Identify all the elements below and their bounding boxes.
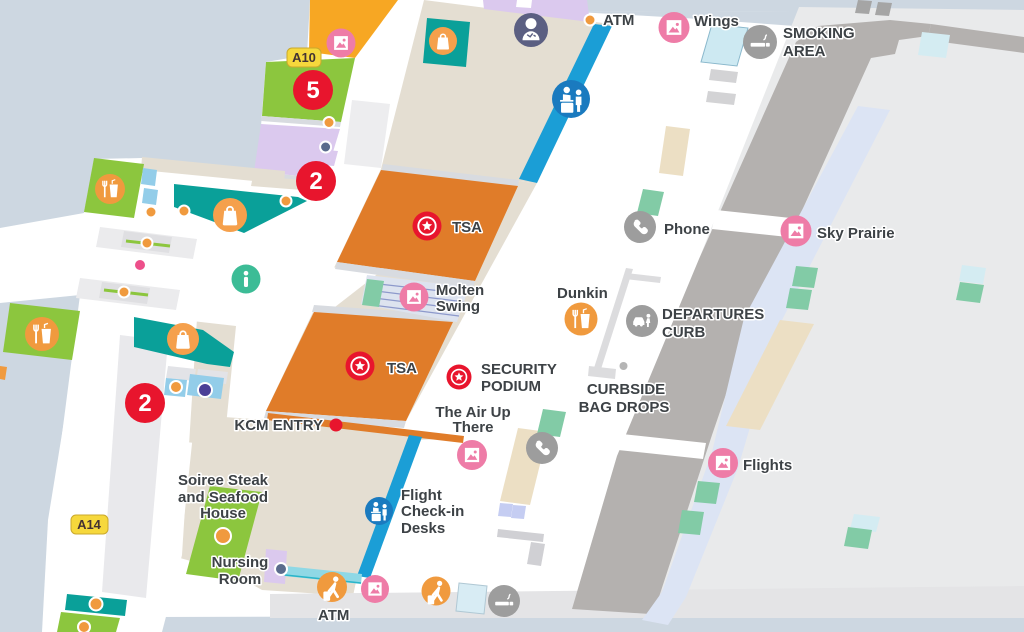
svg-text:A14: A14 <box>77 517 102 532</box>
svg-text:House: House <box>200 505 246 522</box>
svg-text:Room: Room <box>219 571 262 588</box>
svg-text:Sky Prairie: Sky Prairie <box>817 225 895 242</box>
svg-text:2: 2 <box>138 390 151 417</box>
svg-text:CURBSIDE: CURBSIDE <box>587 381 665 398</box>
svg-text:Soiree Steak: Soiree Steak <box>178 472 269 489</box>
svg-text:Molten: Molten <box>436 282 484 299</box>
svg-text:Dunkin: Dunkin <box>557 285 608 302</box>
svg-text:DEPARTURES: DEPARTURES <box>662 306 764 323</box>
svg-text:and Seafood: and Seafood <box>178 489 268 506</box>
svg-text:PODIUM: PODIUM <box>481 378 541 395</box>
svg-text:TSA: TSA <box>387 360 417 377</box>
svg-text:There: There <box>453 419 494 436</box>
svg-text:2: 2 <box>309 168 322 195</box>
svg-text:Check-in: Check-in <box>401 503 464 520</box>
svg-text:ATM: ATM <box>603 12 634 29</box>
svg-text:ATM: ATM <box>318 607 349 624</box>
svg-text:KCM ENTRY: KCM ENTRY <box>234 417 323 434</box>
svg-text:CURB: CURB <box>662 324 705 341</box>
svg-text:Nursing: Nursing <box>212 554 269 571</box>
svg-text:SECURITY: SECURITY <box>481 361 557 378</box>
svg-text:TSA: TSA <box>452 219 482 236</box>
svg-text:A10: A10 <box>292 50 316 65</box>
svg-text:Wings: Wings <box>694 13 739 30</box>
svg-text:Desks: Desks <box>401 520 445 537</box>
svg-text:BAG DROPS: BAG DROPS <box>579 399 670 416</box>
svg-text:AREA: AREA <box>783 43 826 60</box>
svg-text:Phone: Phone <box>664 221 710 238</box>
svg-text:SMOKING: SMOKING <box>783 25 855 42</box>
svg-text:Flight: Flight <box>401 487 442 504</box>
svg-text:Flights: Flights <box>743 457 792 474</box>
svg-text:Swing: Swing <box>436 298 480 315</box>
svg-text:5: 5 <box>306 77 319 104</box>
